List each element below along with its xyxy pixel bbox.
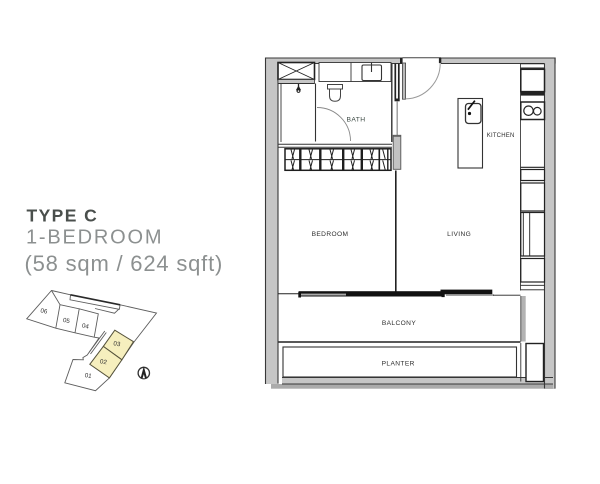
svg-text:LIVING: LIVING	[447, 231, 471, 238]
svg-text:(58 sqm / 624 sqft): (58 sqm / 624 sqft)	[25, 251, 224, 276]
svg-text:KITCHEN: KITCHEN	[487, 133, 515, 139]
svg-text:BATH: BATH	[347, 117, 366, 124]
svg-text:04: 04	[81, 322, 90, 330]
svg-text:05: 05	[62, 317, 71, 325]
svg-text:BALCONY: BALCONY	[382, 320, 417, 327]
svg-text:1-BEDROOM: 1-BEDROOM	[26, 227, 163, 249]
svg-text:PLANTER: PLANTER	[382, 360, 415, 367]
svg-text:TYPE C: TYPE C	[27, 206, 99, 226]
svg-text:01: 01	[84, 372, 93, 380]
svg-text:BEDROOM: BEDROOM	[312, 231, 349, 238]
svg-text:06: 06	[40, 307, 49, 315]
